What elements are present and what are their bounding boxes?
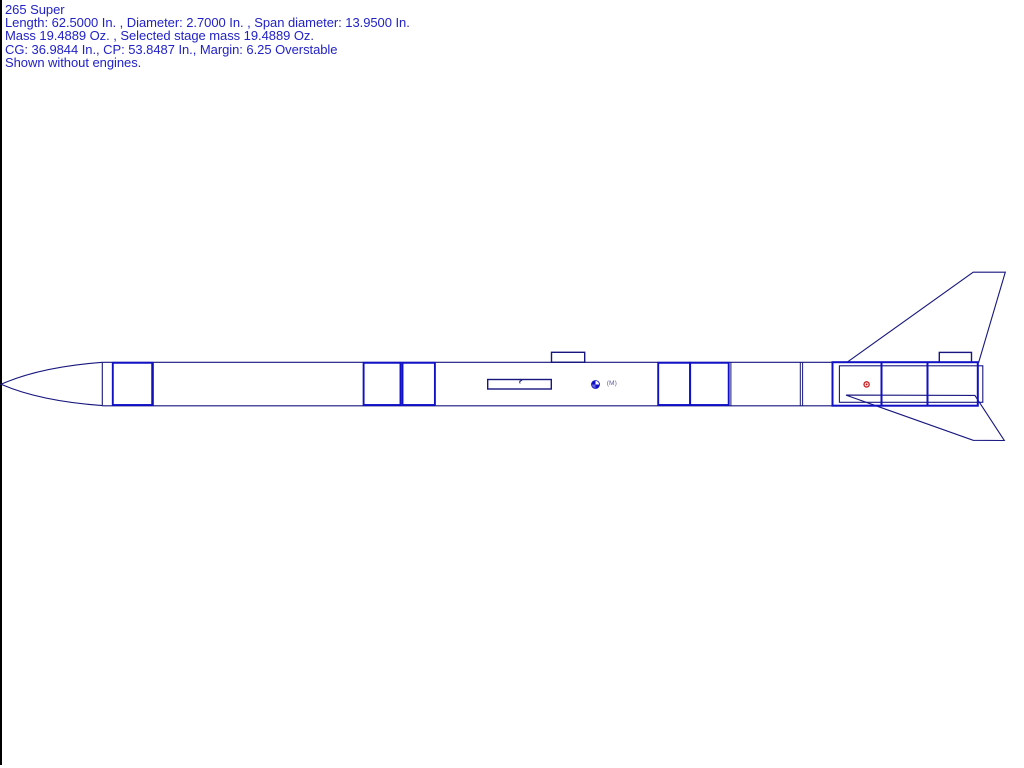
svg-text:(M): (M): [607, 380, 617, 387]
